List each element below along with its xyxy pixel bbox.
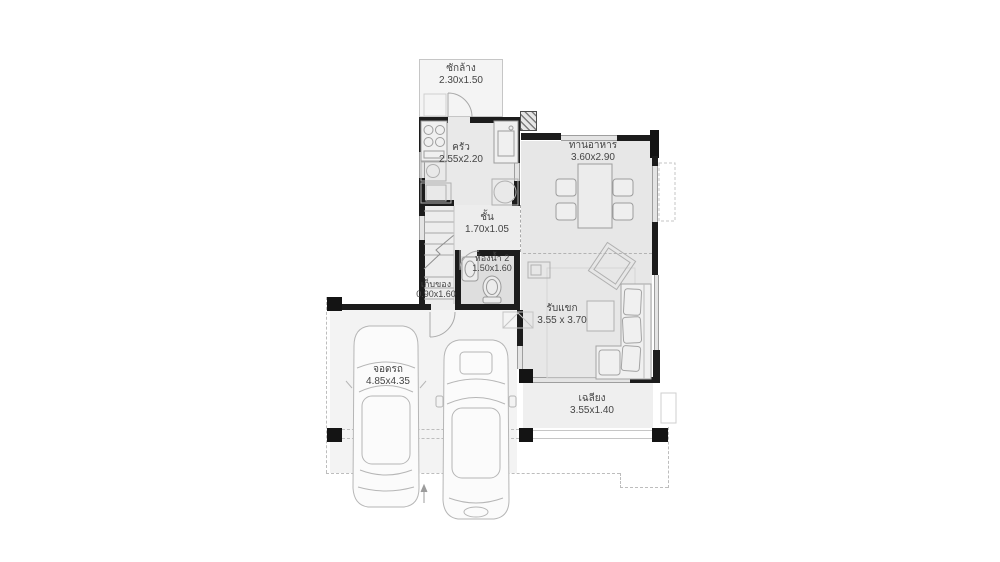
kitchen-sink-right — [494, 121, 518, 163]
room-name: จอดรถ — [366, 364, 410, 376]
room-label-porch: เฉลียง 3.55x1.40 — [570, 393, 614, 417]
room-name: ซักล้าง — [439, 63, 483, 75]
dining-chair — [556, 203, 576, 220]
room-dims: 4.85x4.35 — [366, 376, 410, 388]
room-name: เฉลียง — [570, 393, 614, 405]
room-label-living: รับแขก 3.55 x 3.70 — [537, 303, 586, 327]
washing-machine — [424, 94, 446, 116]
room-dims: 2.55x2.20 — [439, 154, 483, 166]
dining-chair — [613, 179, 633, 196]
dining-chair — [556, 179, 576, 196]
dining-table-set — [556, 164, 633, 228]
room-name: ชั้น — [465, 212, 509, 224]
car-right — [436, 340, 516, 519]
planter-dashed — [659, 163, 675, 221]
room-dims: 0.90x1.60 — [416, 289, 456, 299]
furniture-layer — [0, 0, 1000, 562]
room-label-dining: ทานอาหาร 3.60x2.90 — [569, 140, 617, 164]
entry-door-arc — [430, 312, 455, 337]
room-name: ห้องน้ำ 2 — [472, 253, 512, 263]
room-name: ทานอาหาร — [569, 140, 617, 152]
room-dims: 3.55 x 3.70 — [537, 315, 586, 327]
floor-plan: ซักล้าง 2.30x1.50 ครัว 2.55x2.20 ทานอาหา… — [0, 0, 1000, 562]
room-name: รับแขก — [537, 303, 586, 315]
coffee-table — [587, 301, 614, 331]
porch-step — [661, 393, 676, 423]
kitchen-table — [492, 179, 518, 205]
room-dims: 3.60x2.90 — [569, 152, 617, 164]
door-step — [503, 312, 533, 328]
entry-arrow — [421, 485, 427, 503]
room-label-kitchen: ครัว 2.55x2.20 — [439, 142, 483, 166]
room-label-hall: ชั้น 1.70x1.05 — [465, 212, 509, 236]
room-label-laundry: ซักล้าง 2.30x1.50 — [439, 63, 483, 87]
room-name: ครัว — [439, 142, 483, 154]
room-label-garage: จอดรถ 4.85x4.35 — [366, 364, 410, 388]
car-left — [346, 326, 426, 507]
room-label-bathroom2: ห้องน้ำ 2 1.50x1.60 — [472, 253, 512, 273]
room-name: เก็บของ — [416, 279, 456, 289]
laundry-door-arc — [448, 93, 472, 117]
dining-chair — [613, 203, 633, 220]
room-dims: 2.30x1.50 — [439, 75, 483, 87]
room-label-storage: เก็บของ 0.90x1.60 — [416, 279, 456, 299]
kitchen-counter — [421, 183, 451, 203]
room-dims: 1.50x1.60 — [472, 263, 512, 273]
decor-rotated-square — [588, 242, 635, 289]
room-dims: 3.55x1.40 — [570, 405, 614, 417]
room-dims: 1.70x1.05 — [465, 224, 509, 236]
toilet — [483, 276, 501, 303]
